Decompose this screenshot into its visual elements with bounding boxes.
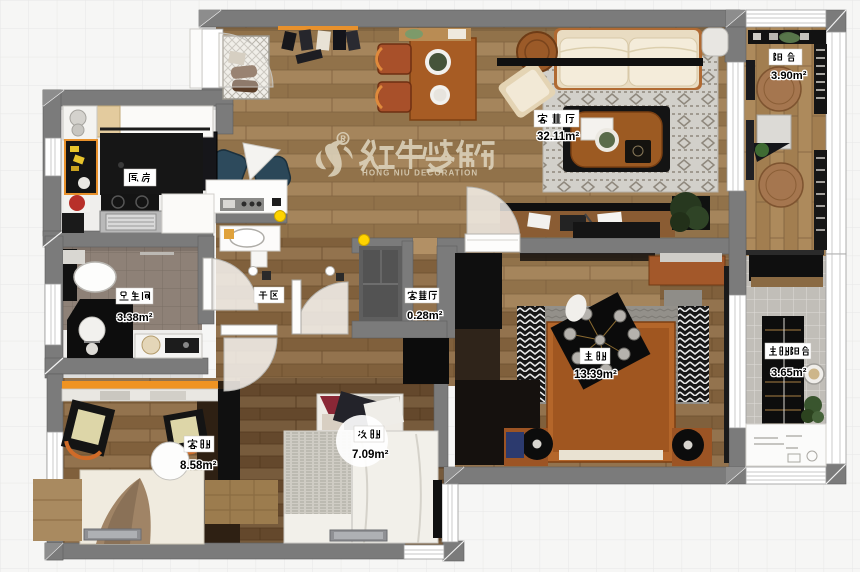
svg-text:0.28m²: 0.28m² bbox=[407, 310, 443, 322]
svg-text:13.39m²: 13.39m² bbox=[574, 369, 617, 381]
svg-text:3.90m²: 3.90m² bbox=[771, 70, 807, 82]
svg-text:8.58m²: 8.58m² bbox=[180, 460, 217, 472]
svg-text:32.11m²: 32.11m² bbox=[537, 131, 579, 143]
svg-text:3.65m²: 3.65m² bbox=[771, 367, 807, 379]
svg-text:7.09m²: 7.09m² bbox=[352, 449, 389, 461]
svg-text:HONG NIU DECORATION: HONG NIU DECORATION bbox=[362, 169, 478, 178]
svg-text:3.38m²: 3.38m² bbox=[117, 312, 153, 324]
